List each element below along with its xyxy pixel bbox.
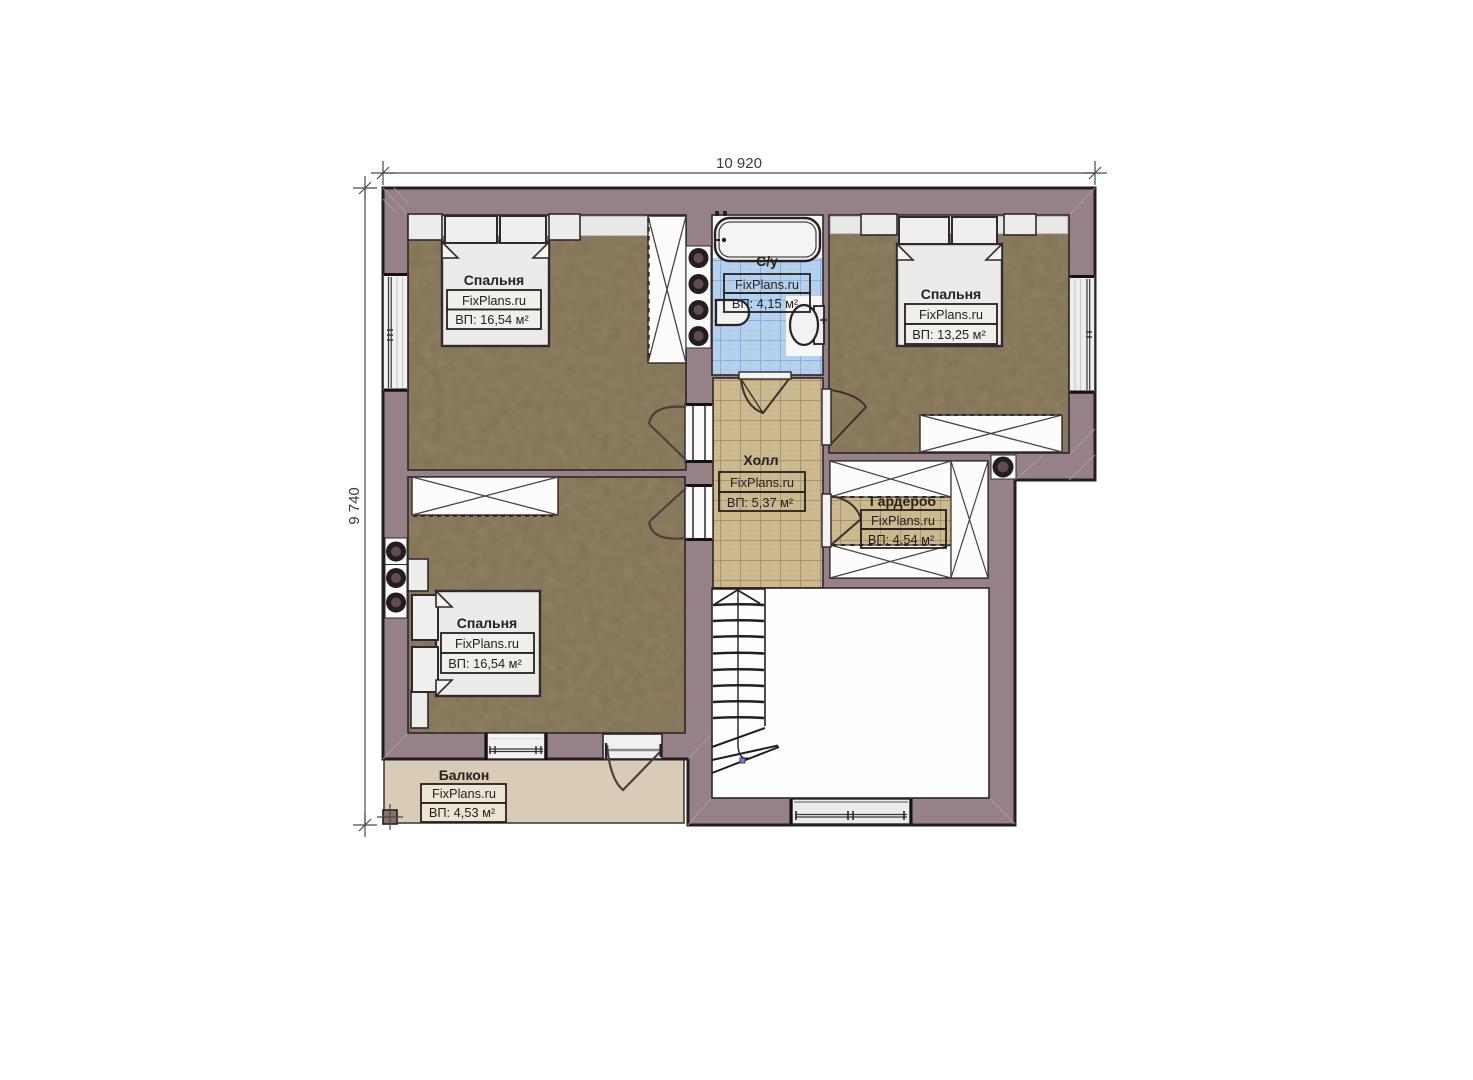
svg-text:FixPlans.ru: FixPlans.ru: [730, 475, 794, 490]
svg-text:ВП: 13,25 м²: ВП: 13,25 м²: [912, 327, 986, 342]
svg-text:Гардероб: Гардероб: [870, 493, 937, 509]
svg-text:FixPlans.ru: FixPlans.ru: [735, 277, 799, 292]
svg-text:С/у: С/у: [756, 253, 778, 269]
svg-text:Спальня: Спальня: [464, 272, 524, 288]
svg-text:Холл: Холл: [743, 452, 778, 468]
svg-text:FixPlans.ru: FixPlans.ru: [455, 636, 519, 651]
svg-text:FixPlans.ru: FixPlans.ru: [871, 513, 935, 528]
svg-text:ВП: 5,37 м²: ВП: 5,37 м²: [727, 495, 794, 510]
svg-text:FixPlans.ru: FixPlans.ru: [462, 293, 526, 308]
svg-text:Балкон: Балкон: [439, 767, 490, 783]
svg-text:9 740: 9 740: [346, 487, 363, 525]
svg-text:10 920: 10 920: [716, 155, 762, 172]
svg-text:ВП: 4,15 м²: ВП: 4,15 м²: [732, 296, 799, 311]
svg-text:FixPlans.ru: FixPlans.ru: [919, 307, 983, 322]
svg-text:Спальня: Спальня: [457, 615, 517, 631]
svg-text:ВП: 16,54 м²: ВП: 16,54 м²: [448, 656, 522, 671]
svg-text:ВП: 4,53 м²: ВП: 4,53 м²: [429, 805, 496, 820]
svg-text:ВП: 4,54 м²: ВП: 4,54 м²: [868, 532, 935, 547]
svg-text:FixPlans.ru: FixPlans.ru: [432, 786, 496, 801]
svg-text:ВП: 16,54 м²: ВП: 16,54 м²: [455, 312, 529, 327]
svg-text:Спальня: Спальня: [921, 286, 981, 302]
